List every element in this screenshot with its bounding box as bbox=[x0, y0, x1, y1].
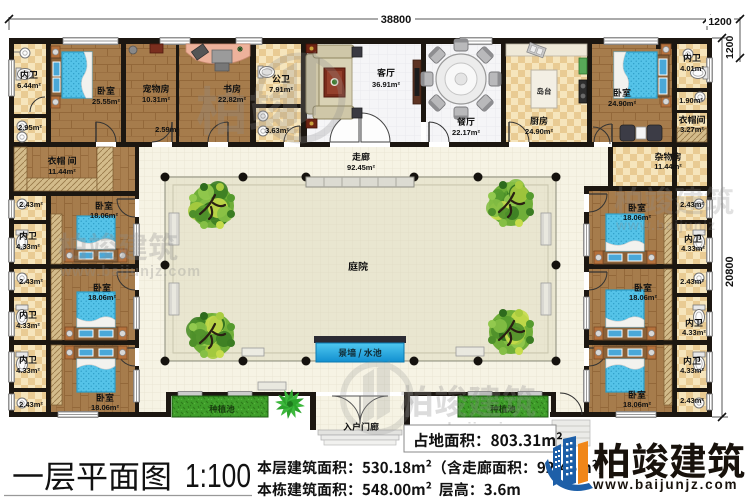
svg-text:1:100: 1:100 bbox=[185, 457, 251, 494]
svg-text:www.baijunjz.com: www.baijunjz.com bbox=[59, 264, 201, 280]
svg-text:2.43m²: 2.43m² bbox=[19, 400, 43, 409]
svg-text:4.33m²: 4.33m² bbox=[680, 366, 704, 375]
svg-text:2.43m²: 2.43m² bbox=[680, 277, 704, 286]
svg-text:22.82m²: 22.82m² bbox=[218, 95, 246, 104]
svg-text:2.43m²: 2.43m² bbox=[680, 396, 704, 405]
svg-text:1200: 1200 bbox=[724, 35, 736, 59]
svg-text:3.27m²: 3.27m² bbox=[680, 125, 704, 134]
svg-text:11.44m²: 11.44m² bbox=[654, 162, 682, 171]
svg-text:2.43m²: 2.43m² bbox=[19, 277, 43, 286]
svg-text:18.06m²: 18.06m² bbox=[623, 400, 651, 409]
svg-text:1.90m²: 1.90m² bbox=[679, 96, 703, 105]
svg-text:20800: 20800 bbox=[724, 256, 736, 287]
svg-text:25.55m²: 25.55m² bbox=[92, 97, 120, 106]
svg-text:4.33m²: 4.33m² bbox=[16, 321, 40, 330]
svg-text:4.33m²: 4.33m² bbox=[16, 366, 40, 375]
svg-text:18.06m²: 18.06m² bbox=[88, 293, 116, 302]
svg-text:6.44m²: 6.44m² bbox=[17, 81, 41, 90]
svg-text:4.33m²: 4.33m² bbox=[681, 244, 705, 253]
svg-text:38800: 38800 bbox=[381, 14, 412, 26]
svg-text:24.90m²: 24.90m² bbox=[608, 99, 636, 108]
svg-text:2.95m²: 2.95m² bbox=[18, 123, 42, 132]
svg-text:3.63m²: 3.63m² bbox=[265, 126, 289, 135]
svg-text:18.06m²: 18.06m² bbox=[91, 403, 119, 412]
svg-text:2.59m²: 2.59m² bbox=[155, 125, 179, 134]
svg-text:2.43m²: 2.43m² bbox=[19, 200, 43, 209]
svg-text:11.44m²: 11.44m² bbox=[48, 167, 76, 176]
svg-text:10.31m²: 10.31m² bbox=[142, 95, 170, 104]
svg-text:7.91m²: 7.91m² bbox=[269, 85, 293, 94]
svg-text:36.91m²: 36.91m² bbox=[372, 80, 400, 89]
svg-text:2.43m²: 2.43m² bbox=[680, 200, 704, 209]
svg-text:92.45m²: 92.45m² bbox=[347, 163, 375, 172]
svg-text:18.06m²: 18.06m² bbox=[90, 211, 118, 220]
svg-text:4.33m²: 4.33m² bbox=[682, 328, 706, 337]
svg-text:www.baijunjz.com: www.baijunjz.com bbox=[592, 477, 738, 492]
svg-text:4.33m²: 4.33m² bbox=[16, 242, 40, 251]
svg-text:18.06m²: 18.06m² bbox=[623, 213, 651, 222]
svg-text:24.90m²: 24.90m² bbox=[525, 127, 553, 136]
svg-text:22.17m²: 22.17m² bbox=[452, 128, 480, 137]
svg-text:4.01m²: 4.01m² bbox=[680, 64, 704, 73]
svg-text:1200: 1200 bbox=[708, 16, 732, 28]
svg-text:18.06m²: 18.06m² bbox=[629, 293, 657, 302]
